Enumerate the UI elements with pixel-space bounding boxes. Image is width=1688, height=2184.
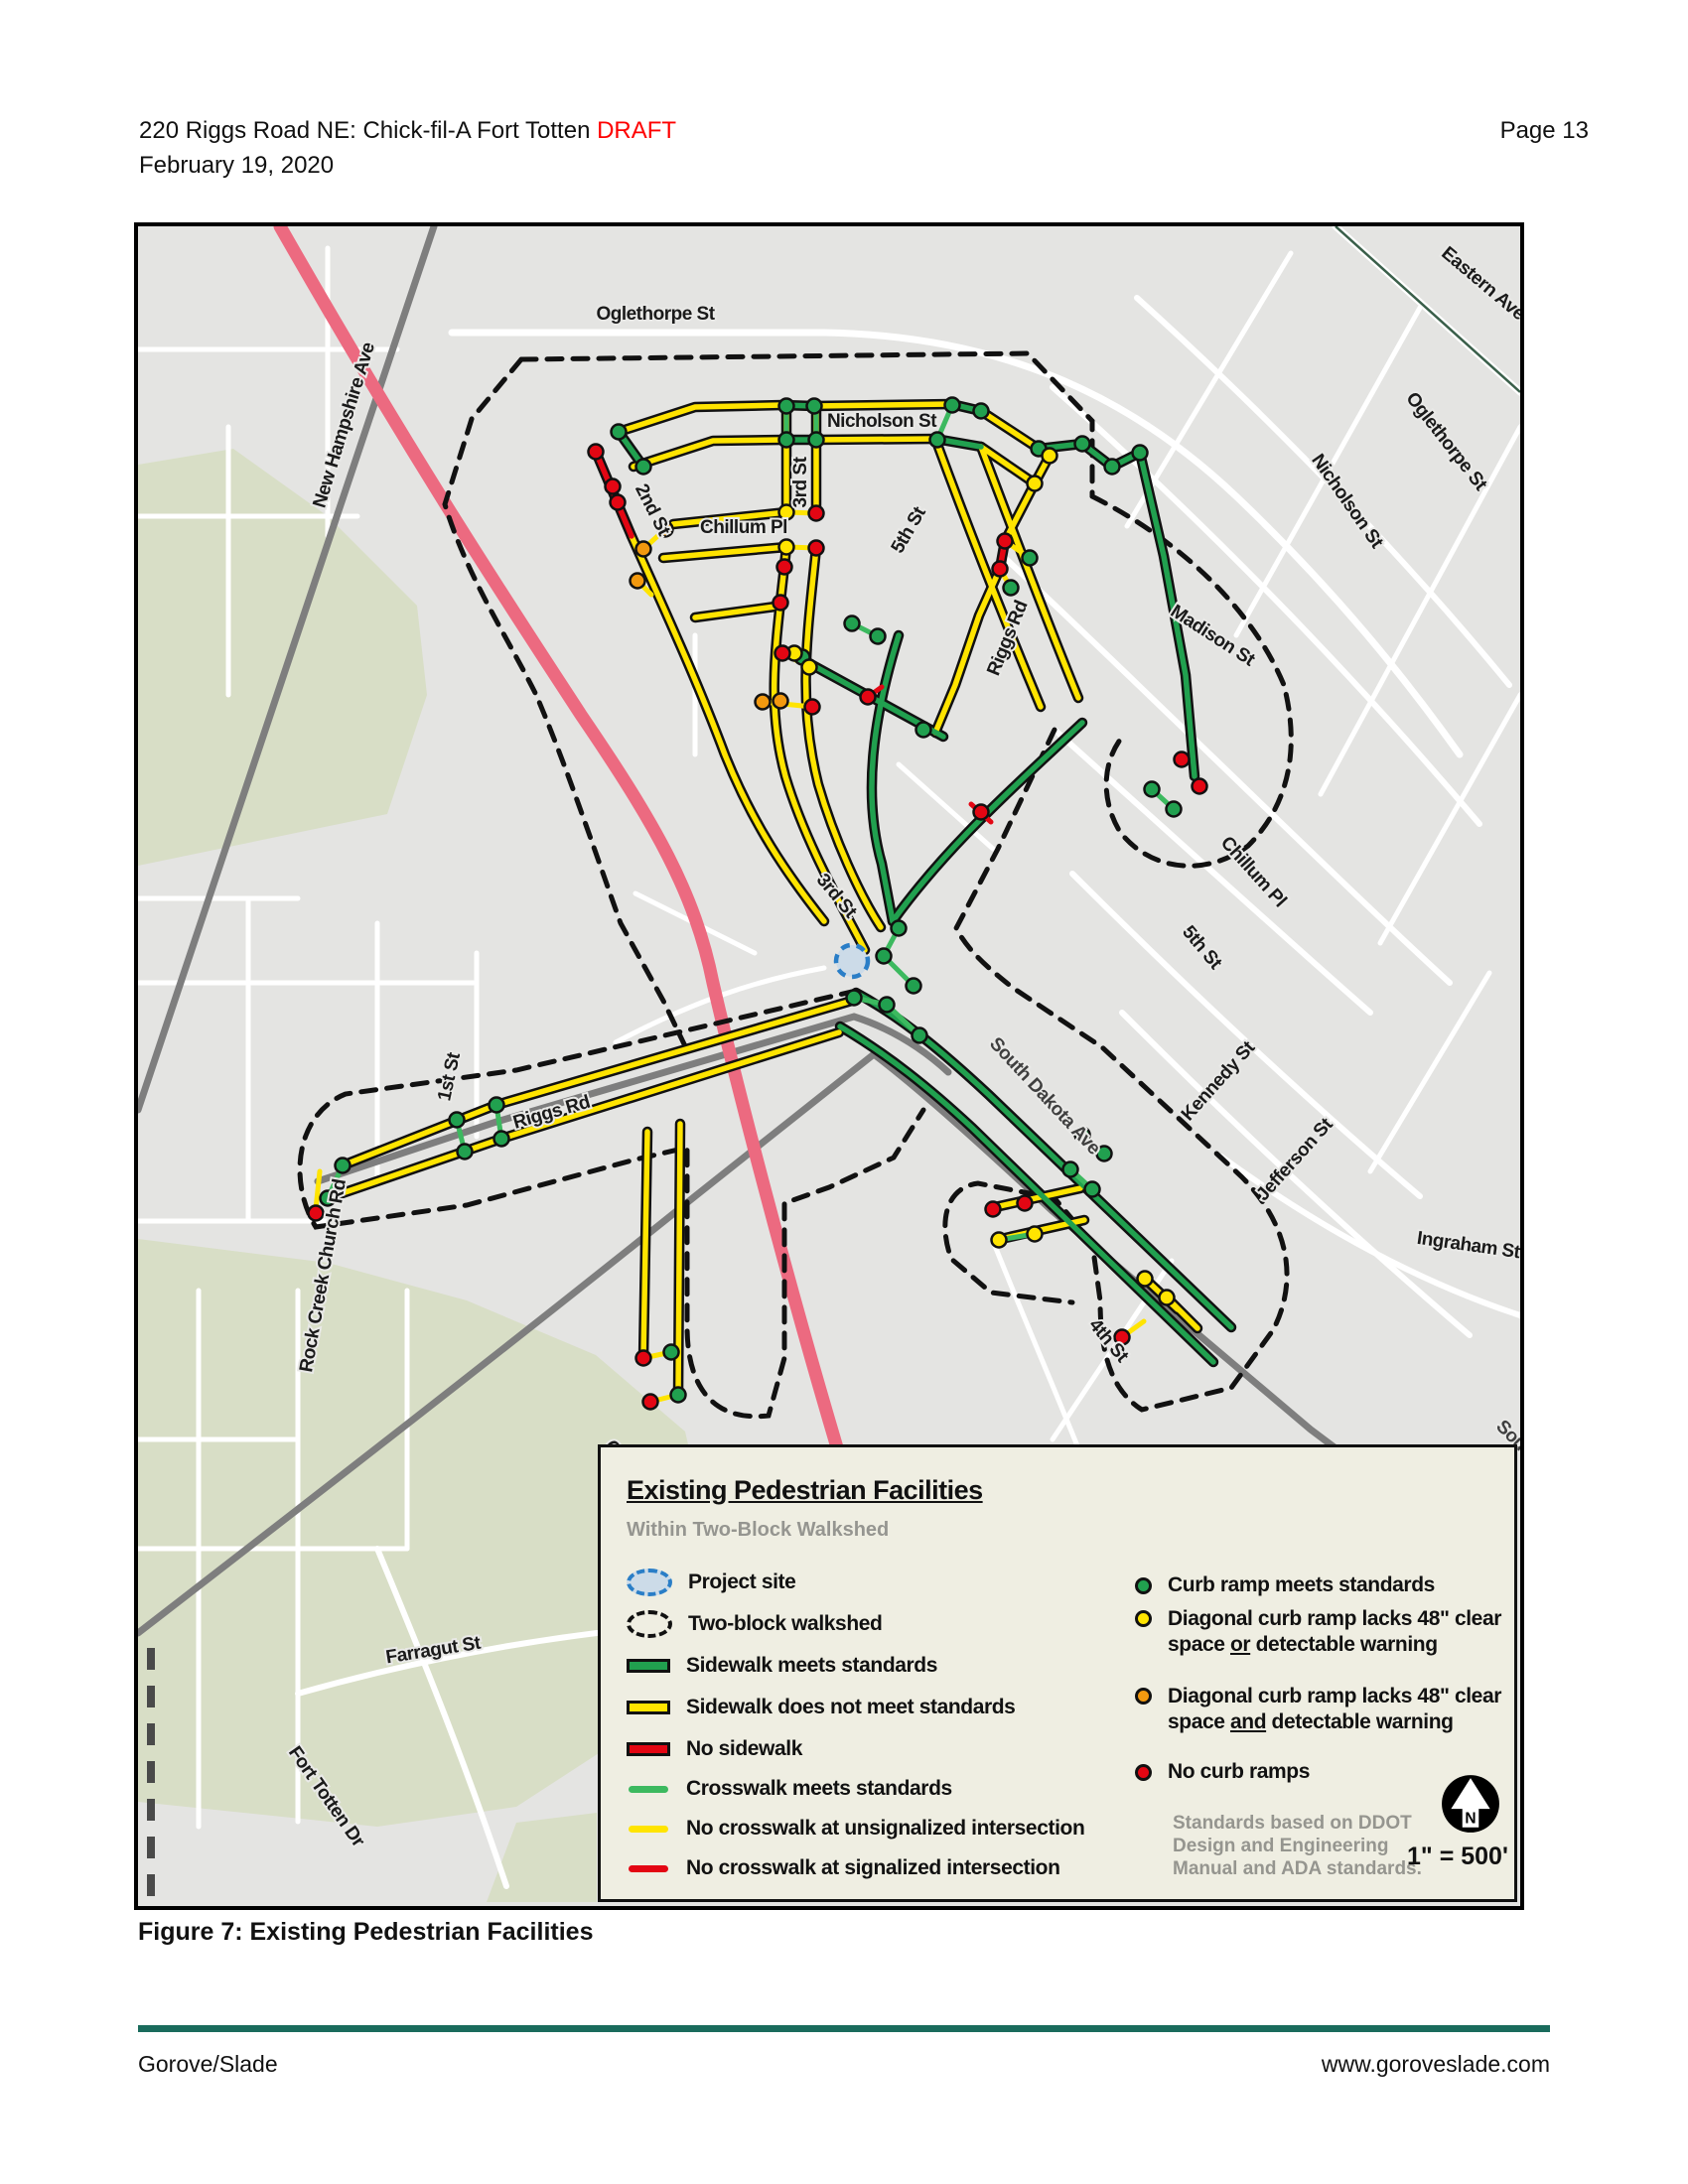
ramp-orange-dot bbox=[1135, 1688, 1152, 1705]
footer-divider bbox=[138, 2025, 1550, 2032]
draft-badge: DRAFT bbox=[597, 117, 676, 144]
street-label: South Dakota Ave bbox=[985, 1033, 1104, 1159]
legend-panel: Existing Pedestrian Facilities Within Tw… bbox=[598, 1444, 1517, 1902]
green-curb-ramp-dot bbox=[1085, 1182, 1100, 1197]
project-site-marker bbox=[836, 945, 868, 977]
legend-title: Existing Pedestrian Facilities bbox=[627, 1475, 983, 1506]
ramp-yellow-dot bbox=[1135, 1610, 1152, 1627]
legend-label: Sidewalk does not meet standards bbox=[686, 1695, 1015, 1720]
green-curb-ramp-dot bbox=[1167, 802, 1182, 817]
green-curb-ramp-dot bbox=[490, 1098, 504, 1113]
doc-title-text: 220 Riggs Road NE: Chick-fil-A Fort Tott… bbox=[139, 117, 597, 144]
note-line: Manual and ADA standards. bbox=[1173, 1858, 1422, 1881]
green-curb-ramp-dot bbox=[494, 1132, 509, 1147]
legend-subtitle: Within Two-Block Walkshed bbox=[627, 1519, 889, 1542]
orange-curb-ramp-dot bbox=[631, 574, 645, 589]
legend-label: Two-block walkshed bbox=[688, 1611, 882, 1637]
legend-label: Diagonal curb ramp lacks 48" clear space… bbox=[1168, 1684, 1501, 1736]
street-label: Jefferson St bbox=[1252, 1114, 1337, 1205]
street-label: Oglethorpe St bbox=[596, 304, 715, 325]
green-curb-ramp-dot bbox=[1133, 446, 1148, 461]
legend-line1: Diagonal curb ramp lacks 48" clear bbox=[1168, 1685, 1501, 1707]
green-curb-ramp-dot bbox=[612, 425, 627, 440]
street-label: Oglethorpe St bbox=[1401, 388, 1491, 495]
yellow-curb-ramp-dot bbox=[779, 540, 794, 555]
green-curb-ramp-dot bbox=[1063, 1162, 1078, 1177]
street-label: Chillum Pl bbox=[1216, 833, 1290, 911]
green-curb-ramp-dot bbox=[974, 404, 989, 419]
street-label: 1st St bbox=[434, 1050, 465, 1103]
legend-item-sidewalk-not-meet: Sidewalk does not meet standards bbox=[627, 1695, 1015, 1720]
walkshed-swatch bbox=[627, 1610, 672, 1638]
footer-company: Gorove/Slade bbox=[138, 2051, 278, 2078]
crosswalk-yellow-swatch bbox=[629, 1826, 668, 1833]
legend-label: Sidewalk meets standards bbox=[686, 1653, 937, 1679]
red-curb-ramp-dot bbox=[974, 805, 989, 820]
legend-item-no-crosswalk-unsignalized: No crosswalk at unsignalized intersectio… bbox=[627, 1816, 1084, 1842]
street-label: Nicholson St bbox=[827, 411, 937, 432]
green-curb-ramp-dot bbox=[807, 399, 822, 414]
yellow-curb-ramp-dot bbox=[1160, 1291, 1175, 1305]
legend-line2-post: detectable warning bbox=[1250, 1633, 1437, 1656]
red-curb-ramp-dot bbox=[774, 596, 788, 611]
yellow-curb-ramp-dot bbox=[802, 660, 817, 675]
legend-item-walkshed: Two-block walkshed bbox=[627, 1610, 882, 1638]
page: { "header": { "title": "220 Riggs Road N… bbox=[0, 0, 1688, 2184]
green-curb-ramp-dot bbox=[880, 998, 895, 1013]
legend-item-no-crosswalk-signalized: No crosswalk at signalized intersection bbox=[627, 1855, 1060, 1881]
green-curb-ramp-dot bbox=[845, 616, 860, 631]
legend-item-sidewalk-meets: Sidewalk meets standards bbox=[627, 1653, 937, 1679]
sidewalk-yellow-swatch bbox=[627, 1701, 670, 1714]
green-curb-ramp-dot bbox=[907, 979, 921, 994]
green-curb-ramp-dot bbox=[913, 1028, 927, 1043]
green-curb-ramp-dot bbox=[671, 1388, 686, 1403]
legend-label: No crosswalk at unsignalized intersectio… bbox=[686, 1816, 1084, 1842]
green-curb-ramp-dot bbox=[930, 433, 945, 448]
legend-line2-pre: space bbox=[1168, 1710, 1230, 1733]
legend-label: Project site bbox=[688, 1570, 795, 1595]
scale-text: 1" = 500' bbox=[1407, 1843, 1508, 1871]
legend-line2-post: detectable warning bbox=[1266, 1710, 1453, 1733]
yellow-curb-ramp-dot bbox=[1028, 477, 1043, 491]
ramp-red-dot bbox=[1135, 1764, 1152, 1781]
note-line: Design and Engineering bbox=[1173, 1836, 1422, 1858]
doc-date: February 19, 2020 bbox=[139, 152, 334, 180]
sidewalk-red-swatch bbox=[627, 1742, 670, 1756]
red-curb-ramp-dot bbox=[775, 646, 790, 661]
street-label: Nicholson St bbox=[1307, 451, 1387, 553]
green-curb-ramp-dot bbox=[1105, 460, 1120, 475]
eastern-ave-line bbox=[1336, 226, 1520, 392]
green-curb-ramp-dot bbox=[871, 629, 886, 644]
doc-title: 220 Riggs Road NE: Chick-fil-A Fort Tott… bbox=[139, 117, 676, 145]
project-site-swatch bbox=[627, 1569, 672, 1596]
footer-website[interactable]: www.goroveslade.com bbox=[1322, 2051, 1550, 2078]
legend-item-ramp-lacks-or: Diagonal curb ramp lacks 48" clear space… bbox=[1135, 1606, 1501, 1659]
red-curb-ramp-dot bbox=[611, 495, 626, 510]
red-curb-ramp-dot bbox=[809, 541, 824, 556]
street-label: Ingraham St bbox=[1416, 1228, 1520, 1263]
red-curb-ramp-dot bbox=[606, 479, 621, 494]
red-curb-ramp-dot bbox=[1175, 752, 1190, 767]
green-curb-ramp-dot bbox=[458, 1145, 473, 1160]
legend-item-ramp-meets: Curb ramp meets standards bbox=[1135, 1572, 1435, 1598]
legend-line2-emph: and bbox=[1230, 1710, 1266, 1733]
orange-curb-ramp-dot bbox=[756, 695, 771, 710]
figure-caption: Figure 7: Existing Pedestrian Facilities bbox=[138, 1918, 593, 1947]
red-curb-ramp-dot bbox=[993, 562, 1008, 577]
street-label: 5th St bbox=[1178, 922, 1226, 975]
orange-curb-ramp-dot bbox=[774, 694, 788, 709]
green-curb-ramp-dot bbox=[1075, 437, 1090, 452]
red-curb-ramp-dot bbox=[643, 1395, 658, 1410]
street-label: Eastern Ave bbox=[1437, 243, 1520, 325]
yellow-curb-ramp-dot bbox=[992, 1233, 1007, 1248]
legend-label: Curb ramp meets standards bbox=[1168, 1572, 1435, 1598]
legend-line2-pre: space bbox=[1168, 1633, 1230, 1656]
svg-text:N: N bbox=[1465, 1811, 1476, 1828]
legend-label: No curb ramps bbox=[1168, 1759, 1310, 1785]
green-curb-ramp-dot bbox=[336, 1159, 351, 1173]
green-curb-ramp-dot bbox=[1004, 581, 1019, 596]
street-label: 5th St bbox=[888, 502, 931, 557]
green-curb-ramp-dot bbox=[945, 398, 960, 413]
legend-item-no-sidewalk: No sidewalk bbox=[627, 1736, 802, 1762]
green-curb-ramp-dot bbox=[877, 949, 892, 964]
legend-label: No sidewalk bbox=[686, 1736, 802, 1762]
green-curb-ramp-dot bbox=[450, 1113, 465, 1128]
ramp-green-dot bbox=[1135, 1577, 1152, 1594]
page-number: Page 13 bbox=[1500, 117, 1589, 145]
street-label: Chillum Pl bbox=[700, 517, 787, 538]
red-curb-ramp-dot bbox=[777, 560, 792, 575]
green-curb-ramp-dot bbox=[664, 1345, 679, 1360]
legend-line1: Diagonal curb ramp lacks 48" clear bbox=[1168, 1607, 1501, 1630]
legend-label: Diagonal curb ramp lacks 48" clear space… bbox=[1168, 1606, 1501, 1659]
red-curb-ramp-dot bbox=[1018, 1196, 1033, 1211]
crosswalk-green-swatch bbox=[629, 1786, 668, 1793]
legend-item-no-ramps: No curb ramps bbox=[1135, 1759, 1310, 1785]
green-curb-ramp-dot bbox=[779, 399, 794, 414]
red-curb-ramp-dot bbox=[309, 1206, 324, 1221]
street-label: 2nd St bbox=[631, 480, 674, 540]
north-arrow-icon: N bbox=[1440, 1773, 1501, 1835]
red-curb-ramp-dot bbox=[1193, 779, 1207, 794]
green-curb-ramp-dot bbox=[636, 460, 651, 475]
legend-item-project-site: Project site bbox=[627, 1569, 795, 1596]
legend-label: No crosswalk at signalized intersection bbox=[686, 1855, 1060, 1881]
red-curb-ramp-dot bbox=[998, 534, 1013, 549]
legend-item-crosswalk-meets: Crosswalk meets standards bbox=[627, 1776, 952, 1802]
sidewalk-green-swatch bbox=[627, 1659, 670, 1673]
red-curb-ramp-dot bbox=[986, 1202, 1001, 1217]
yellow-curb-ramp-dot bbox=[1028, 1227, 1043, 1242]
green-curb-ramp-dot bbox=[809, 433, 824, 448]
green-curb-ramp-dot bbox=[779, 433, 794, 448]
legend-item-ramp-lacks-and: Diagonal curb ramp lacks 48" clear space… bbox=[1135, 1684, 1501, 1736]
legend-label: Crosswalk meets standards bbox=[686, 1776, 952, 1802]
green-curb-ramp-dot bbox=[1145, 782, 1160, 797]
green-curb-ramp-dot bbox=[916, 723, 931, 738]
green-curb-ramp-dot bbox=[892, 921, 907, 936]
crosswalk-red-swatch bbox=[629, 1865, 668, 1872]
note-line: Standards based on DDOT bbox=[1173, 1813, 1422, 1836]
street-label: 3rd St bbox=[790, 456, 811, 507]
yellow-curb-ramp-dot bbox=[1138, 1272, 1153, 1287]
red-curb-ramp-dot bbox=[805, 700, 820, 715]
legend-note: Standards based on DDOT Design and Engin… bbox=[1173, 1813, 1422, 1880]
red-curb-ramp-dot bbox=[861, 690, 876, 705]
legend-line2-emph: or bbox=[1230, 1633, 1250, 1656]
red-curb-ramp-dot bbox=[589, 445, 604, 460]
red-curb-ramp-dot bbox=[636, 1351, 651, 1366]
green-curb-ramp-dot bbox=[1023, 551, 1038, 566]
green-curb-ramp-dot bbox=[847, 991, 862, 1006]
orange-curb-ramp-dot bbox=[636, 542, 651, 557]
yellow-curb-ramp-dot bbox=[1043, 449, 1057, 464]
